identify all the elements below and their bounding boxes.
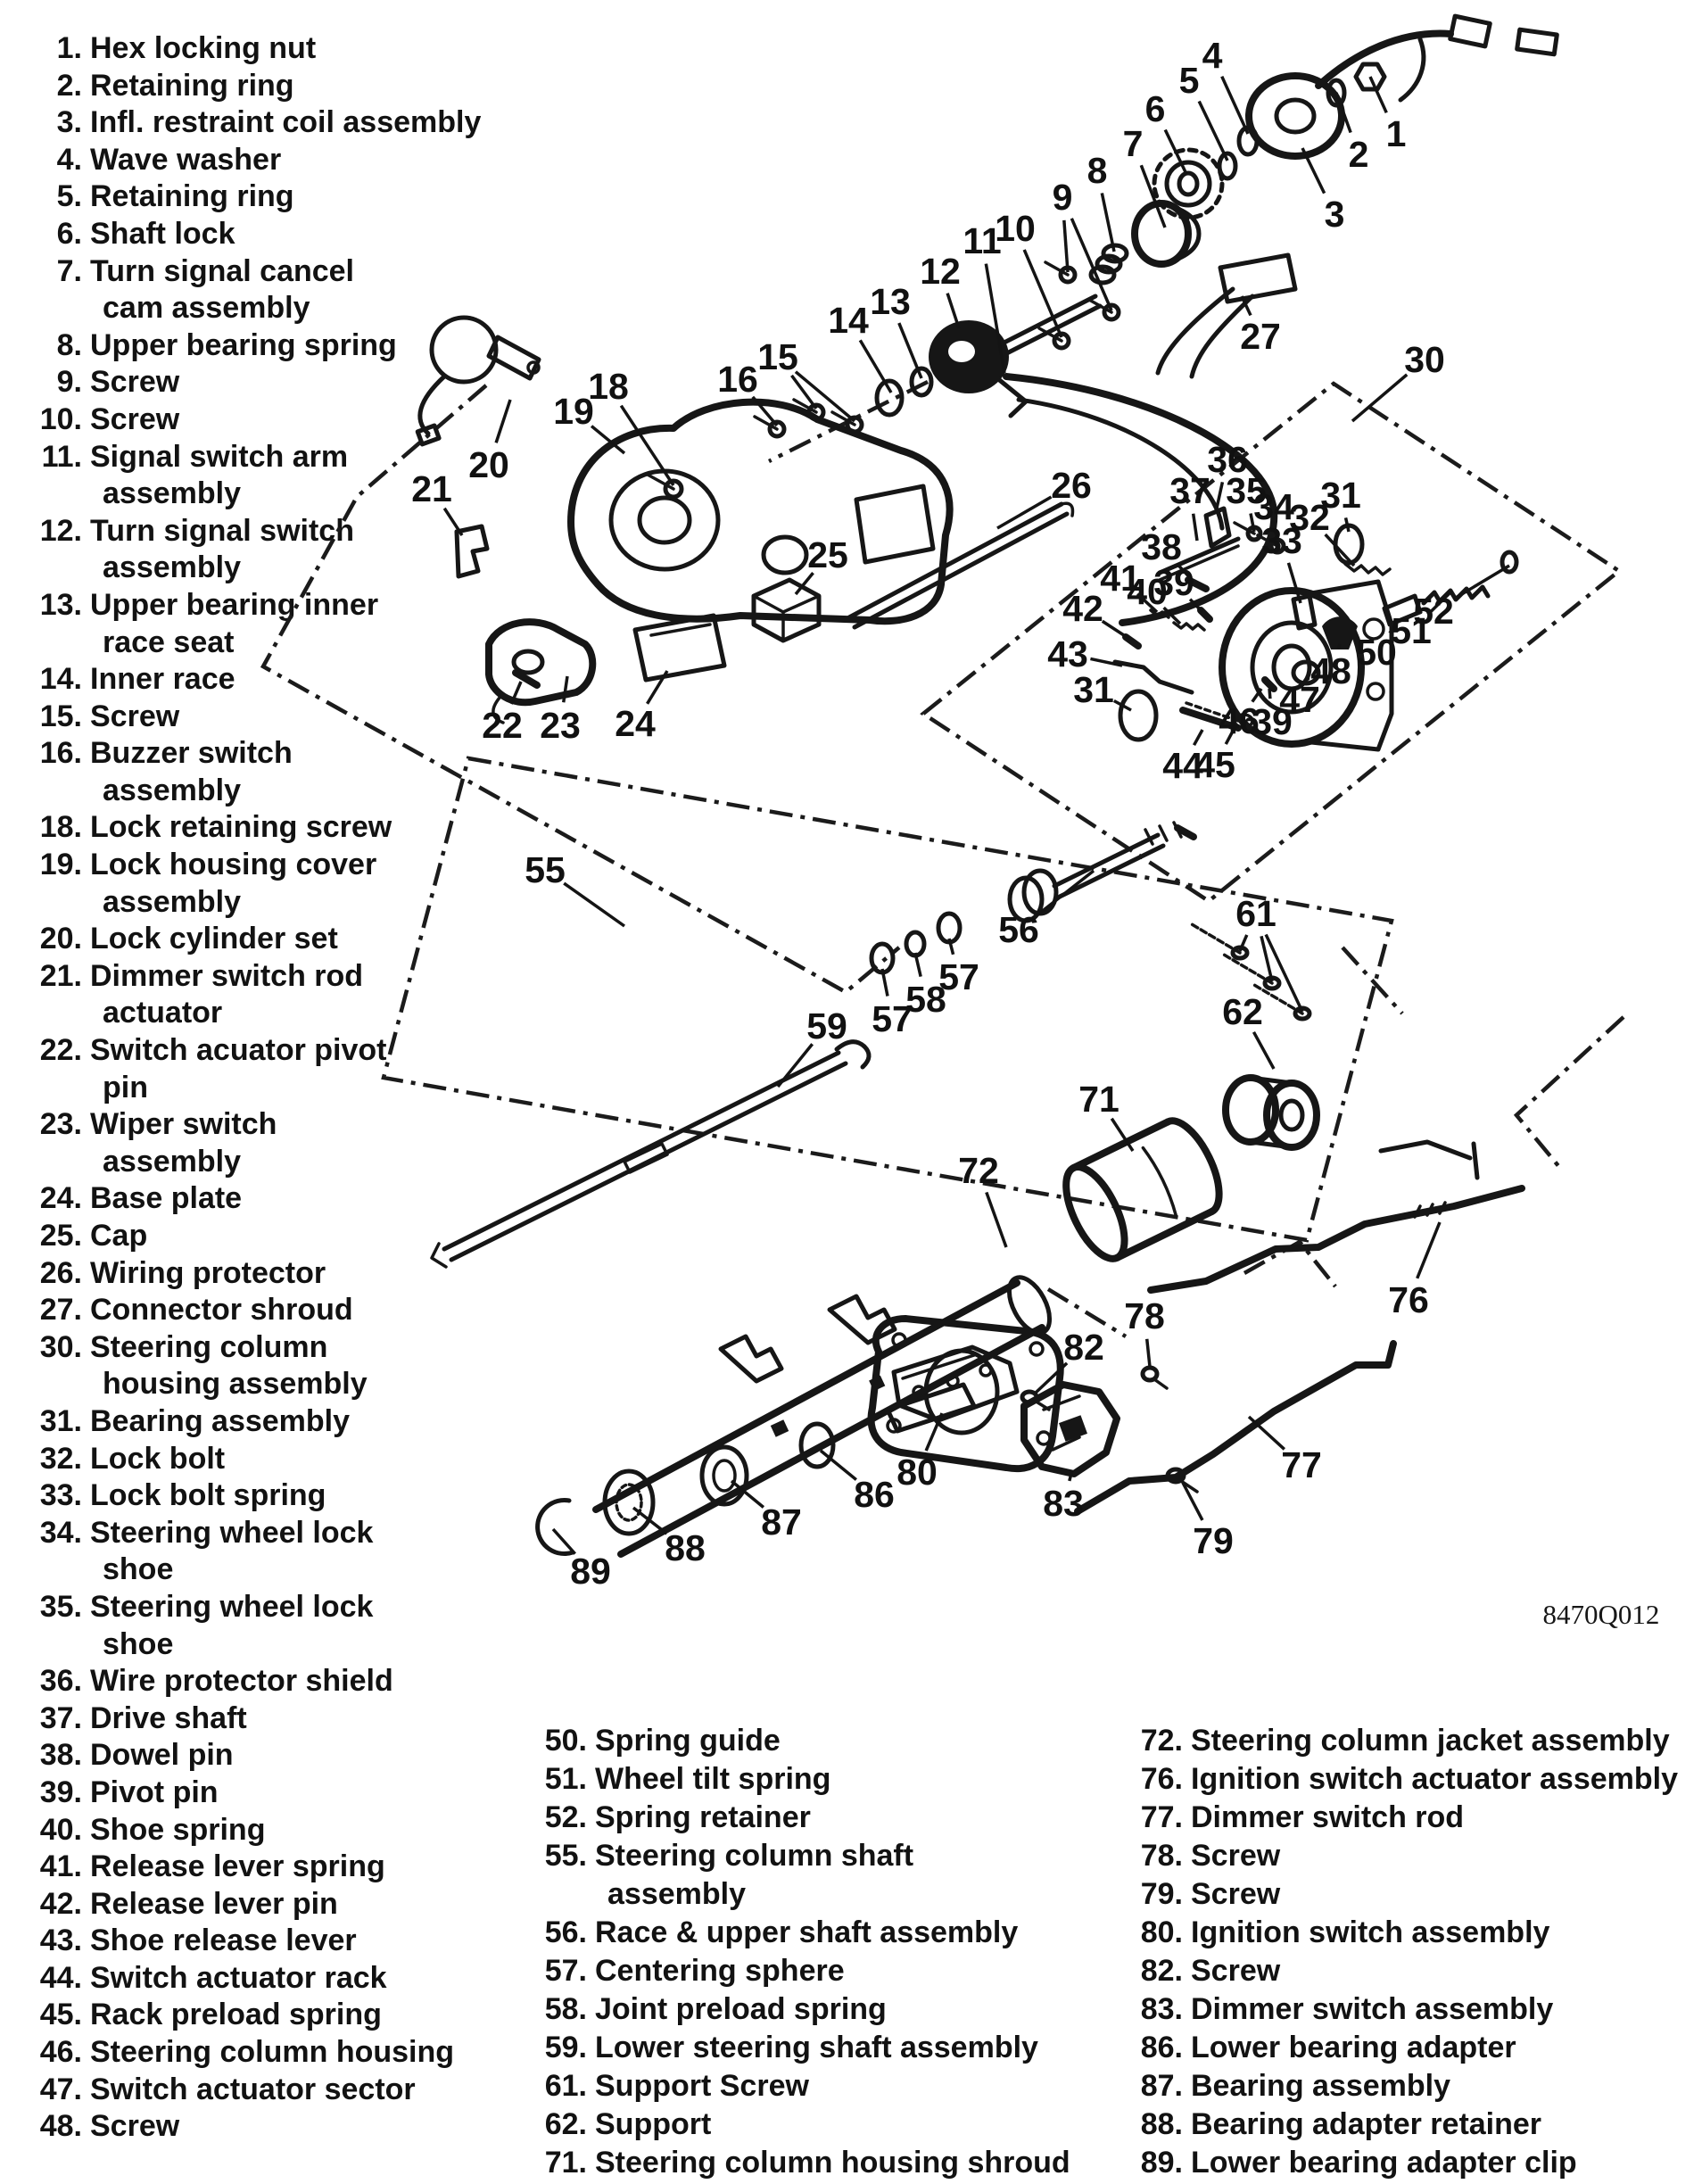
cover-square-hole bbox=[856, 486, 933, 562]
leader-line-14 bbox=[860, 340, 891, 393]
housing-assembly-phantom-box bbox=[923, 384, 1619, 901]
cable-loop bbox=[432, 318, 496, 382]
callout-number-57: 57 bbox=[872, 998, 913, 1039]
leader-line-37 bbox=[1194, 514, 1197, 541]
leader-line-72 bbox=[987, 1192, 1006, 1247]
callout-number-80: 80 bbox=[896, 1452, 938, 1493]
callout-number-89: 89 bbox=[570, 1551, 611, 1592]
shaft-lock-teeth bbox=[1154, 150, 1222, 218]
coil-assembly-drawing bbox=[1039, 16, 1557, 348]
callout-number-59: 59 bbox=[806, 1005, 847, 1046]
leader-line-56 bbox=[1037, 871, 1094, 915]
jacket-bracket-1 bbox=[721, 1336, 781, 1381]
callout-number-71: 71 bbox=[1078, 1079, 1120, 1120]
leader-line-7 bbox=[1141, 165, 1165, 227]
pivot-pin-lower bbox=[1265, 680, 1274, 689]
jacket-bracket-2 bbox=[830, 1296, 895, 1343]
callout-number-18: 18 bbox=[588, 366, 629, 407]
callout-number-72: 72 bbox=[958, 1150, 999, 1191]
hub-bore bbox=[948, 341, 975, 362]
callout-number-88: 88 bbox=[665, 1527, 706, 1568]
leader-line-1 bbox=[1370, 77, 1386, 112]
cover-outline bbox=[571, 402, 950, 622]
callout-number-52: 52 bbox=[1413, 591, 1454, 632]
callout-number-13: 13 bbox=[870, 281, 911, 322]
callout-number-22: 22 bbox=[482, 705, 523, 746]
callout-number-25: 25 bbox=[807, 534, 848, 575]
leader-line-76 bbox=[1417, 1222, 1440, 1278]
wiper-switch-detail bbox=[514, 651, 542, 673]
support-drawing bbox=[1226, 1078, 1317, 1147]
callout-number-23: 23 bbox=[540, 705, 581, 746]
lock-housing-cover-drawing bbox=[571, 402, 950, 622]
cancel-cam-cup bbox=[1135, 203, 1188, 264]
shroud-drawing bbox=[1054, 1113, 1231, 1267]
callout-number-61: 61 bbox=[1235, 893, 1276, 934]
callout-number-2: 2 bbox=[1349, 134, 1369, 175]
shroud-back bbox=[1168, 1113, 1231, 1212]
callout-number-27: 27 bbox=[1240, 316, 1281, 357]
dimmer-rod-drawing bbox=[1078, 1344, 1393, 1511]
harness-branch-wire bbox=[1400, 39, 1424, 100]
leader-line-23 bbox=[564, 676, 567, 702]
leader-line-8 bbox=[1102, 193, 1114, 252]
callout-number-3: 3 bbox=[1325, 194, 1345, 235]
leader-line-20 bbox=[496, 400, 510, 443]
plate-hole-2 bbox=[1367, 683, 1384, 699]
callout-number-48: 48 bbox=[1310, 650, 1351, 691]
race-seat-ring bbox=[912, 368, 931, 395]
phantom-accent-2 bbox=[1516, 1017, 1624, 1167]
leader-line-48 bbox=[1338, 644, 1340, 649]
coil-hub bbox=[1276, 100, 1314, 132]
leader-line-52 bbox=[1453, 566, 1509, 600]
callout-number-11: 11 bbox=[963, 220, 1001, 261]
leader-line-55 bbox=[564, 883, 624, 926]
shaft-lock-bore bbox=[1179, 173, 1197, 194]
leader-line-78 bbox=[1147, 1339, 1150, 1367]
callout-number-16: 16 bbox=[717, 359, 758, 400]
leader-line-62 bbox=[1253, 1032, 1274, 1069]
shaft-lock-body bbox=[1167, 162, 1210, 205]
centering-sphere-1 bbox=[872, 944, 893, 972]
preload-spring-ring bbox=[906, 932, 924, 955]
callout-number-37: 37 bbox=[1169, 470, 1210, 511]
callout-number-56: 56 bbox=[998, 909, 1039, 950]
callout-number-76: 76 bbox=[1388, 1279, 1429, 1320]
rod-bracket bbox=[1381, 1142, 1477, 1178]
callout-number-12: 12 bbox=[920, 251, 961, 292]
leader-line-77 bbox=[1249, 1417, 1285, 1449]
cover-round-hole bbox=[764, 537, 806, 573]
leader-line-9 bbox=[1064, 220, 1068, 272]
callout-number-32: 32 bbox=[1289, 497, 1330, 538]
callout-number-31: 31 bbox=[1073, 669, 1114, 710]
callout-number-1: 1 bbox=[1386, 113, 1407, 154]
callout-number-6: 6 bbox=[1145, 88, 1166, 129]
bearing-ring-left bbox=[1120, 691, 1156, 740]
leader-line-21 bbox=[444, 509, 462, 535]
cover-bore-inner bbox=[640, 498, 690, 542]
callout-number-26: 26 bbox=[1051, 465, 1092, 506]
signal-switch-arm bbox=[997, 378, 1026, 416]
shoe-release-lever-part bbox=[1115, 662, 1192, 692]
callout-number-8: 8 bbox=[1087, 150, 1108, 191]
centering-sphere-2 bbox=[938, 914, 960, 942]
callout-number-30: 30 bbox=[1404, 339, 1445, 380]
callout-number-45: 45 bbox=[1194, 744, 1235, 785]
steering-column-exploded-diagram: 1234567891011121314151618192021222324252… bbox=[0, 0, 1702, 2184]
callout-number-79: 79 bbox=[1193, 1520, 1234, 1561]
leader-line-4 bbox=[1222, 77, 1248, 134]
wiring-protector-drawing bbox=[849, 503, 1073, 627]
callout-number-86: 86 bbox=[854, 1474, 895, 1515]
callout-number-15: 15 bbox=[757, 336, 798, 377]
screw-78 bbox=[1143, 1368, 1167, 1388]
connector-shroud-part bbox=[1220, 255, 1295, 302]
callout-number-82: 82 bbox=[1063, 1327, 1104, 1368]
ignition-actuator-rod bbox=[1151, 1188, 1522, 1290]
callout-number-21: 21 bbox=[411, 468, 452, 509]
screw-18 bbox=[648, 475, 682, 497]
callout-number-42: 42 bbox=[1062, 588, 1103, 629]
callout-number-77: 77 bbox=[1281, 1444, 1322, 1485]
exploded-parts-diagram-page: 1. Hex locking nut 2. Retaining ring 3. … bbox=[0, 0, 1702, 2184]
callout-number-5: 5 bbox=[1179, 60, 1200, 101]
cap-drawing bbox=[754, 580, 819, 641]
callout-number-78: 78 bbox=[1124, 1295, 1165, 1336]
callout-number-55: 55 bbox=[525, 849, 566, 890]
screw-16 bbox=[755, 417, 784, 436]
harness-connector-1 bbox=[1450, 16, 1491, 46]
callout-number-62: 62 bbox=[1222, 991, 1263, 1032]
leader-line-13 bbox=[899, 323, 921, 378]
callout-number-19: 19 bbox=[553, 391, 594, 432]
screw-9a bbox=[1045, 262, 1075, 282]
leader-line-44 bbox=[1194, 730, 1202, 745]
callout-number-20: 20 bbox=[468, 444, 509, 485]
shroud-seam bbox=[1143, 1146, 1178, 1215]
callout-number-24: 24 bbox=[615, 703, 656, 744]
coil-outer bbox=[1249, 76, 1342, 156]
callout-number-7: 7 bbox=[1123, 123, 1144, 164]
leader-line-12 bbox=[947, 294, 959, 328]
dimmer-switch-rod-part bbox=[1078, 1344, 1393, 1511]
callout-number-41: 41 bbox=[1100, 558, 1141, 599]
callout-number-14: 14 bbox=[828, 300, 869, 341]
phantom-accent-1 bbox=[1343, 947, 1402, 1013]
callout-number-4: 4 bbox=[1202, 35, 1223, 76]
callout-number-9: 9 bbox=[1053, 177, 1073, 218]
base-plate-drawing bbox=[635, 616, 724, 680]
jacket-assembly-drawing bbox=[596, 1271, 1061, 1554]
callout-number-83: 83 bbox=[1043, 1483, 1084, 1524]
harness-connector-2 bbox=[1517, 29, 1557, 54]
phantom-boxes bbox=[263, 382, 1624, 1336]
leader-line-31 bbox=[1346, 517, 1349, 532]
leader-line-39 bbox=[1269, 689, 1270, 699]
callout-number-87: 87 bbox=[761, 1501, 802, 1543]
